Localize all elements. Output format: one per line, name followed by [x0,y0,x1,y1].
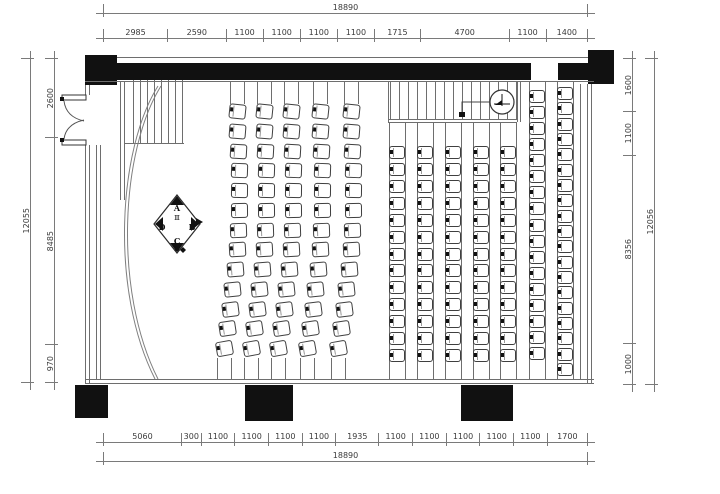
elevation-letter-b: B [189,222,196,232]
door-swing-arc [64,120,84,139]
device-symbol [459,90,514,117]
dim-label: 1100 [517,29,537,42]
dim-label: 2985 [125,29,145,42]
dim-label: 12056 [646,209,655,234]
dim-label: 1715 [387,29,407,42]
elevation-letter-d: D [159,222,166,232]
dim-label: 1100 [486,433,506,446]
dim-label: 1100 [234,29,254,42]
door-swing-arc [64,101,84,121]
dim-label: 1100 [419,433,439,446]
elevation-marker: A B C D Ⅲ Ⅲ [154,195,203,253]
dim-label: 1100 [385,433,405,446]
dim-label: 1600 [624,75,633,95]
elevation-glyph: Ⅲ [174,215,180,222]
dim-label: 1100 [208,433,228,446]
dim-label: 8356 [624,239,633,259]
dim-label: 1100 [624,123,633,143]
door-hinge-dot [60,138,64,142]
dim-label: 300 [184,433,199,446]
dim-label: 18890 [333,4,358,17]
elevation-glyph: Ⅲ [174,246,180,253]
floor-plan-canvas: 18890 2985259011001100110011001715470011… [0,0,720,494]
dim-label: 1700 [557,433,577,446]
dim-label: 1100 [309,29,329,42]
elevation-letter-c: C [174,236,180,246]
dim-label: 1935 [347,433,367,446]
dim-label: 8485 [46,231,55,251]
curved-wall-line [127,86,161,379]
dim-label: 2590 [187,29,207,42]
dim-label: 2600 [46,88,55,108]
dim-label: 970 [46,356,55,371]
dim-label: 1100 [346,29,366,42]
dim-label: 1100 [275,433,295,446]
dim-label: 1100 [520,433,540,446]
door-leaf-bottom [62,140,86,145]
device-leader-dot [459,112,465,117]
dim-label: 5060 [132,433,152,446]
dim-label: 18890 [333,452,358,465]
dim-label: 4700 [455,29,475,42]
dim-label: 1000 [624,354,633,374]
elevation-letter-a: A [173,203,181,213]
door-leaf-top [62,95,86,100]
dim-label: 1100 [453,433,473,446]
dim-segment: 300 [181,433,201,446]
door-hinge-dot [60,97,64,101]
dim-label: 1100 [241,433,261,446]
dim-label: 1400 [557,29,577,42]
annotation-layer: A B C D Ⅲ Ⅲ [0,0,720,494]
dim-label: 1100 [272,29,292,42]
device-leader-line [462,102,490,116]
dim-label: 12055 [22,208,31,233]
dim-label: 1100 [309,433,329,446]
